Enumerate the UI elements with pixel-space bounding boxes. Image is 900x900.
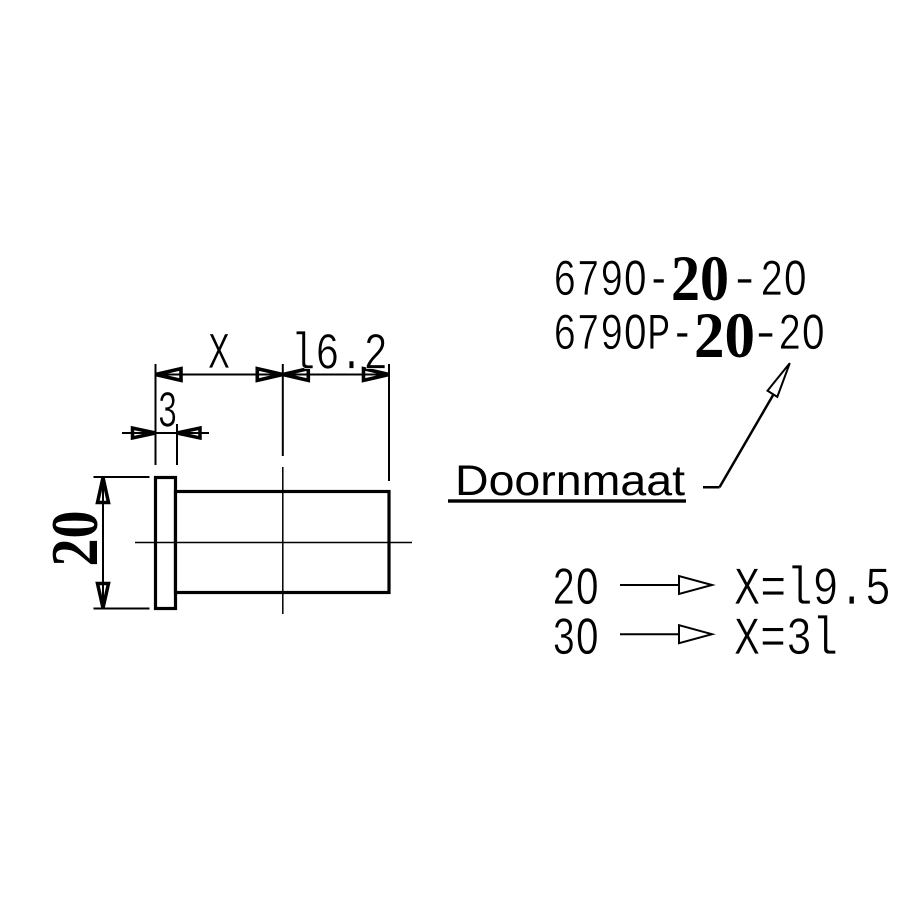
- svg-text:20: 20: [38, 511, 112, 567]
- svg-text:2O: 2O: [760, 252, 807, 311]
- svg-text:X: X: [208, 325, 230, 384]
- svg-text:3O: 3O: [552, 610, 599, 671]
- svg-text:679O-: 679O-: [553, 252, 671, 311]
- svg-text:X=3l: X=3l: [734, 610, 838, 671]
- svg-text:l6.2: l6.2: [291, 326, 388, 385]
- svg-text:20: 20: [694, 300, 755, 372]
- svg-text:3: 3: [158, 384, 178, 443]
- svg-text:Doornmaat: Doornmaat: [455, 457, 685, 505]
- svg-text:679OP-: 679OP-: [553, 306, 694, 365]
- svg-text:2O: 2O: [778, 306, 825, 365]
- svg-text:-: -: [750, 306, 781, 365]
